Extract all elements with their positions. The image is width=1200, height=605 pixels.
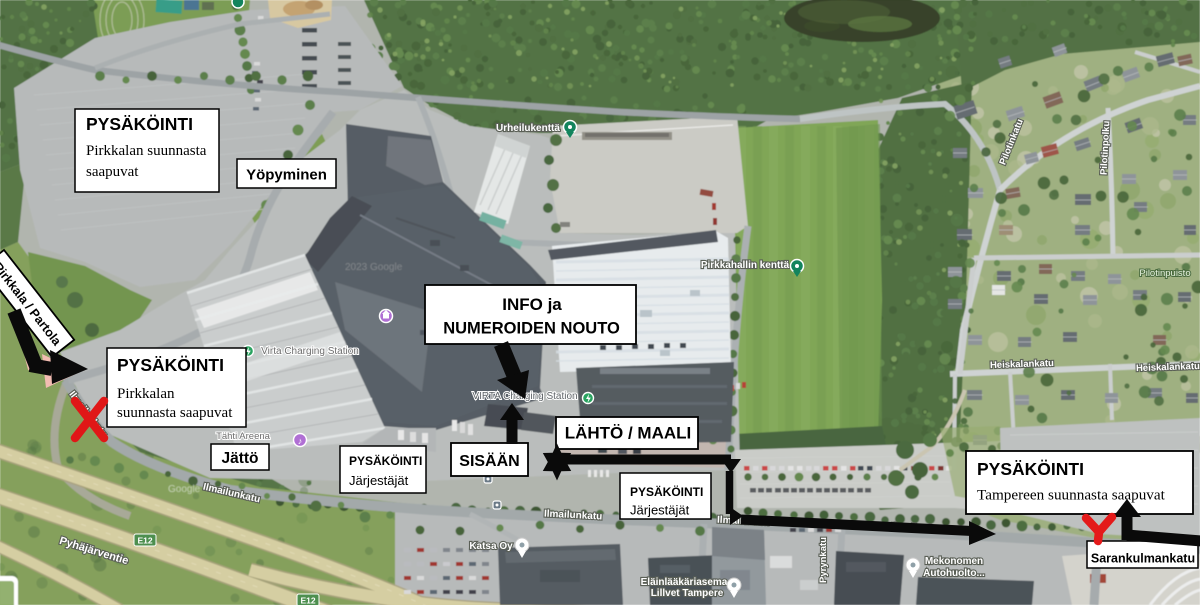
svg-text:Järjestäjät: Järjestäjät — [349, 473, 409, 488]
svg-text:Tähti Areena: Tähti Areena — [216, 431, 271, 442]
svg-text:SISÄÄN: SISÄÄN — [459, 452, 519, 470]
svg-text:Pyrynkatu: Pyrynkatu — [818, 537, 829, 583]
svg-text:Sarankulmankatu: Sarankulmankatu — [1091, 552, 1195, 566]
svg-text:♪: ♪ — [298, 436, 303, 446]
svg-text:PYSÄKÖINTI: PYSÄKÖINTI — [977, 459, 1084, 479]
svg-text:PYSÄKÖINTI: PYSÄKÖINTI — [117, 355, 224, 375]
svg-text:Pirkkahallin kenttä: Pirkkahallin kenttä — [701, 260, 790, 271]
svg-text:Autohuolto...: Autohuolto... — [923, 568, 985, 579]
svg-text:saapuvat: saapuvat — [86, 164, 139, 180]
svg-text:Jättö: Jättö — [221, 450, 258, 467]
svg-text:Heiskalankatu: Heiskalankatu — [1136, 361, 1200, 374]
svg-text:PYSÄKÖINTI: PYSÄKÖINTI — [630, 484, 703, 499]
svg-text:E12: E12 — [137, 536, 152, 546]
svg-text:PYSÄKÖINTI: PYSÄKÖINTI — [349, 453, 422, 468]
svg-text:Järjestäjät: Järjestäjät — [630, 503, 690, 518]
svg-text:LÄHTÖ / MAALI: LÄHTÖ / MAALI — [565, 424, 692, 443]
svg-text:Pirkkalan suunnasta: Pirkkalan suunnasta — [86, 143, 207, 159]
svg-text:PYSÄKÖINTI: PYSÄKÖINTI — [86, 114, 193, 134]
svg-text:Virta Charging Station: Virta Charging Station — [261, 346, 359, 357]
svg-text:Mekonomen: Mekonomen — [925, 556, 983, 567]
svg-text:Tampereen suunnasta saapuvat: Tampereen suunnasta saapuvat — [977, 487, 1166, 504]
svg-text:INFO ja: INFO ja — [502, 295, 562, 314]
svg-text:Pilotinpuisto: Pilotinpuisto — [1139, 268, 1190, 279]
svg-text:Eläinlääkäriasema: Eläinlääkäriasema — [641, 577, 728, 588]
svg-text:suunnasta saapuvat: suunnasta saapuvat — [117, 405, 233, 421]
svg-text:Katsa Oy: Katsa Oy — [469, 541, 513, 552]
svg-text:Heiskalankatu: Heiskalankatu — [990, 358, 1054, 371]
svg-text:NUMEROIDEN NOUTO: NUMEROIDEN NOUTO — [443, 320, 620, 338]
svg-text:E12: E12 — [300, 596, 315, 605]
svg-text:Pirkkalan: Pirkkalan — [117, 386, 175, 402]
svg-text:Urheilukenttä: Urheilukenttä — [496, 123, 560, 134]
svg-text:Lillvet Tampere: Lillvet Tampere — [651, 588, 724, 599]
svg-text:Yöpyminen: Yöpyminen — [246, 167, 327, 184]
